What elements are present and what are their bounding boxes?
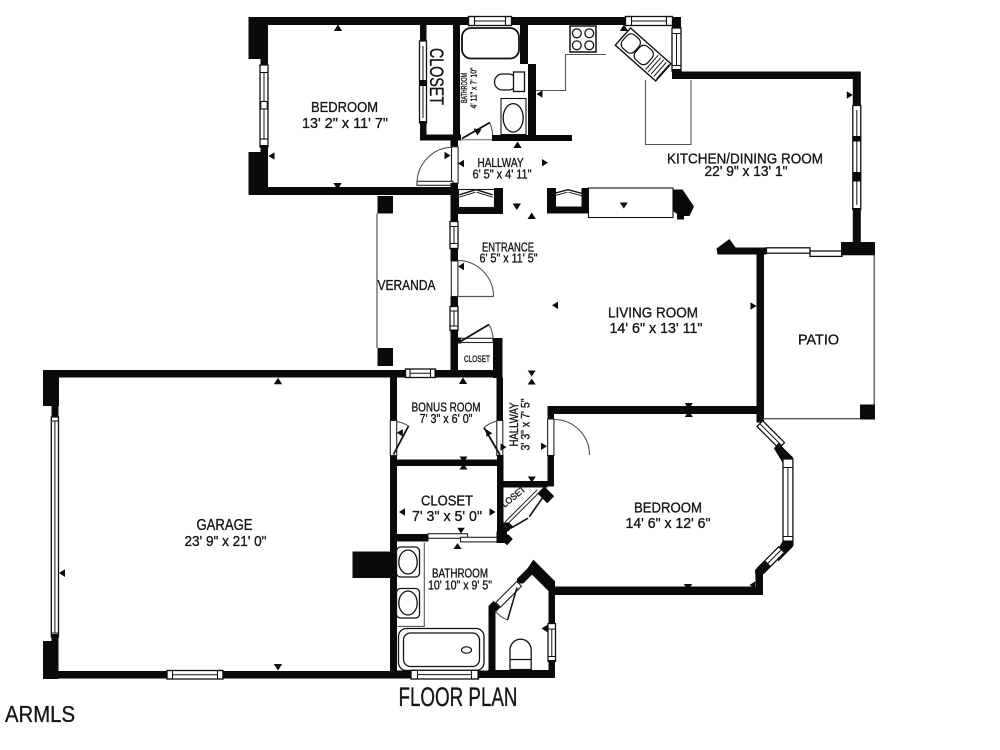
svg-text:22' 9" x 13' 1": 22' 9" x 13' 1"	[705, 163, 788, 180]
svg-text:LIVING ROOM: LIVING ROOM	[608, 305, 698, 322]
svg-text:FLOOR PLAN: FLOOR PLAN	[399, 682, 518, 712]
svg-text:CLOSET: CLOSET	[464, 354, 490, 365]
svg-text:CLOSET: CLOSET	[421, 493, 473, 510]
svg-text:7' 3" x 5' 0": 7' 3" x 5' 0"	[412, 508, 482, 525]
svg-text:4' 11" x 7' 10": 4' 11" x 7' 10"	[470, 67, 479, 108]
svg-text:7' 3" x 6' 0": 7' 3" x 6' 0"	[420, 412, 473, 426]
svg-text:HALLWAY: HALLWAY	[509, 402, 521, 446]
svg-text:14' 6" x 13' 11": 14' 6" x 13' 11"	[610, 320, 703, 337]
svg-text:10' 10" x 9' 5": 10' 10" x 9' 5"	[428, 579, 492, 593]
svg-text:ARMLS: ARMLS	[5, 701, 75, 727]
svg-text:6' 5" x 4' 11": 6' 5" x 4' 11"	[473, 168, 532, 182]
svg-text:CLOSET: CLOSET	[425, 48, 446, 105]
svg-text:6' 5" x 11' 5": 6' 5" x 11' 5"	[480, 252, 538, 266]
svg-text:BATHROOM: BATHROOM	[460, 73, 469, 103]
svg-text:GARAGE: GARAGE	[197, 517, 253, 534]
svg-text:VERANDA: VERANDA	[378, 278, 436, 294]
svg-text:PATIO: PATIO	[798, 332, 839, 349]
svg-text:14' 6" x 12' 6": 14' 6" x 12' 6"	[626, 515, 711, 532]
svg-text:BEDROOM: BEDROOM	[311, 99, 378, 116]
svg-text:3' 3" x 7' 5": 3' 3" x 7' 5"	[520, 399, 532, 451]
svg-text:23' 9" x 21' 0": 23' 9" x 21' 0"	[185, 533, 267, 550]
svg-text:BEDROOM: BEDROOM	[634, 500, 702, 517]
svg-text:13' 2" x 11' 7": 13' 2" x 11' 7"	[302, 115, 388, 132]
